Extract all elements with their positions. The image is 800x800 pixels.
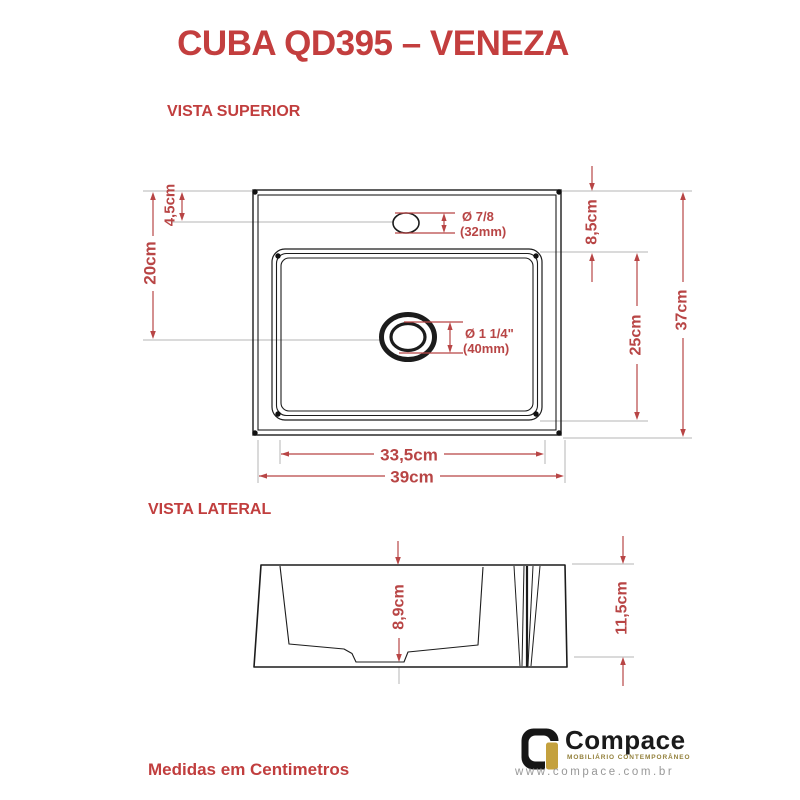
brand-website: www.compace.com.br — [515, 766, 674, 778]
dim-4-5cm: 4,5cm — [162, 184, 179, 227]
faucet-hole — [393, 213, 419, 233]
dim-39cm: 39cm — [390, 468, 433, 487]
drain-hole-inner — [391, 324, 425, 351]
dim-25cm: 25cm — [628, 315, 645, 356]
faucet-diameter-label: Ø 7/8 — [462, 209, 494, 224]
dim-11-5cm: 11,5cm — [614, 581, 631, 634]
dim-20cm: 20cm — [141, 241, 160, 284]
brand-logo: Compace MOBILIÁRIO CONTEMPORÂNEO www.com… — [515, 727, 685, 787]
brand-tagline: MOBILIÁRIO CONTEMPORÂNEO — [567, 754, 690, 761]
drain-diameter-label: Ø 1 1/4" — [465, 326, 514, 341]
dim-37cm: 37cm — [674, 290, 691, 331]
brand-name: Compace — [565, 725, 686, 756]
dim-8-9cm: 8,9cm — [391, 584, 408, 629]
drain-diameter-mm-label: (40mm) — [463, 341, 509, 356]
top-view-drawing — [252, 189, 561, 435]
dim-33-5cm: 33,5cm — [380, 446, 438, 465]
side-view-drawing — [254, 565, 567, 667]
page: CUBA QD395 – VENEZA VISTA SUPERIOR VISTA… — [0, 0, 800, 800]
compace-logo-icon — [521, 728, 559, 770]
dim-8-5cm: 8,5cm — [584, 199, 601, 244]
faucet-diameter-mm-label: (32mm) — [460, 224, 506, 239]
technical-drawing: 4,5cm 20cm 8,5cm 25cm 37cm 33,5cm 39cm Ø… — [0, 0, 800, 800]
